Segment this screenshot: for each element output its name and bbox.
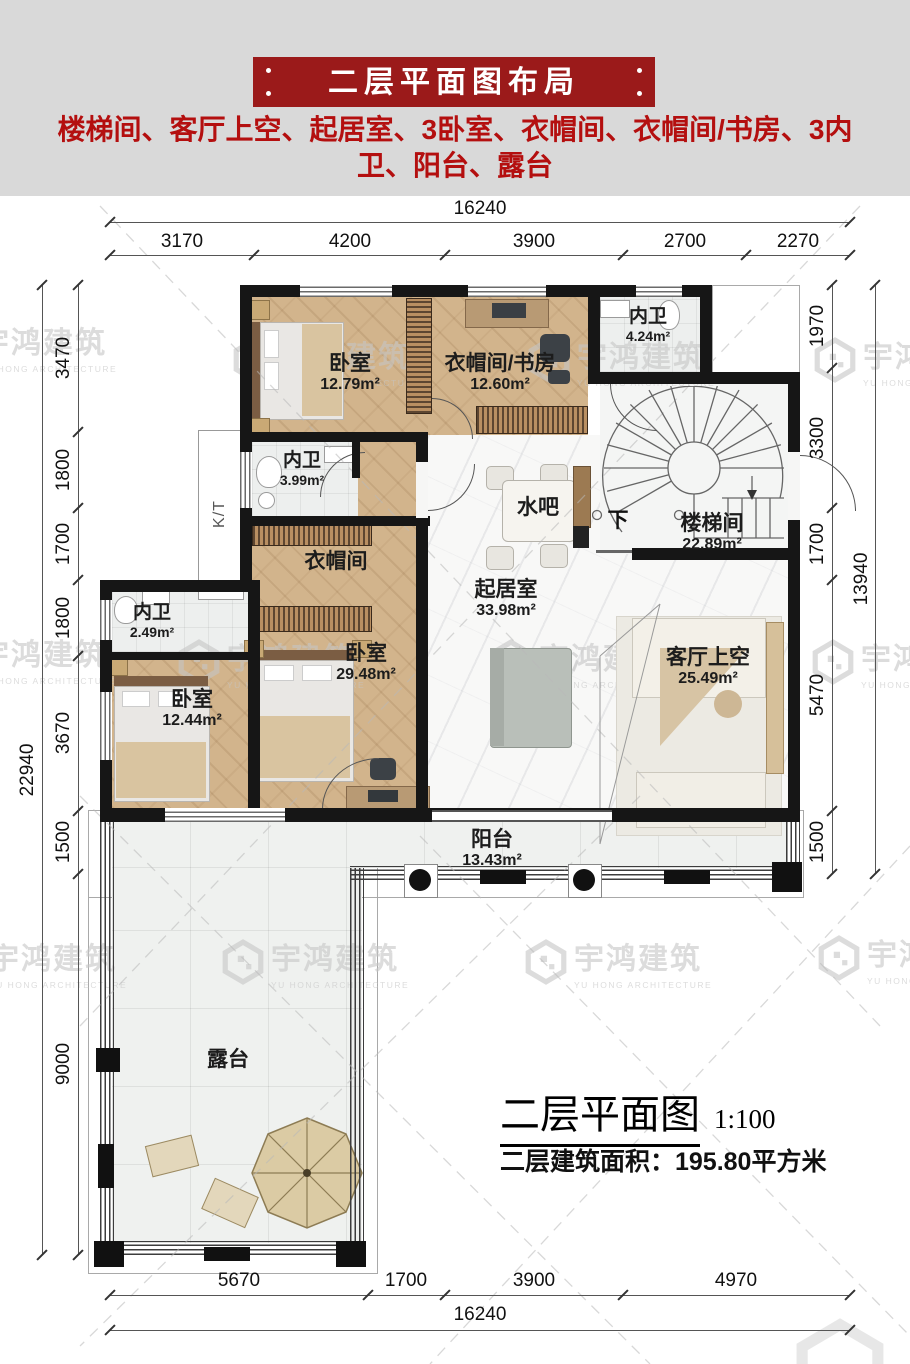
room-name: 内卫 (130, 602, 174, 624)
room-area: 33.98m² (475, 602, 538, 620)
corner-post (772, 862, 802, 892)
plan-caption: 二层平面图 1:100 (500, 1082, 776, 1147)
window (165, 808, 285, 822)
dim-label: 4970 (715, 1270, 757, 1292)
door-opening (788, 452, 800, 520)
room-label-bedroom3: 卧室29.48m² (336, 642, 396, 685)
dim-label: 4200 (329, 231, 371, 253)
dim-label: 1800 (53, 597, 75, 639)
room-area: 4.24m² (626, 328, 670, 344)
wall-segment (700, 285, 712, 384)
room-area: 12.44m² (162, 712, 222, 730)
room-label-living-void: 客厅上空25.49m² (666, 646, 750, 689)
dimension-line (42, 285, 43, 1255)
room-name: 客厅上空 (666, 646, 750, 670)
room-label-living: 起居室33.98m² (475, 578, 538, 621)
room-name: 内卫 (280, 450, 324, 472)
room-label-bath3: 内卫2.49m² (130, 602, 174, 640)
room-area: 3.99m² (280, 472, 324, 488)
wall-segment (240, 516, 430, 526)
dim-label: 3470 (53, 337, 75, 379)
room-name: 卧室 (336, 642, 396, 666)
round-column (568, 864, 602, 898)
corner-post (336, 1241, 366, 1267)
dimension-line (110, 1330, 850, 1331)
room-label-water-bar: 水吧 (517, 496, 559, 520)
wall-segment (588, 372, 800, 384)
banner-dot (637, 68, 642, 73)
page-title-banner: 二层平面图布局 (253, 57, 655, 107)
banner-dot (637, 91, 642, 96)
room-name: 衣帽间/书房 (445, 352, 556, 376)
dim-label: 16240 (454, 1304, 507, 1326)
dim-label: 3900 (513, 1270, 555, 1292)
dim-label: 1500 (807, 821, 829, 863)
railing-post (204, 1247, 250, 1261)
room-name: 卧室 (320, 352, 380, 376)
railing-post (664, 870, 710, 884)
room-label-stairwell: 楼梯间22.89m² (681, 512, 744, 555)
room-name: 露台 (207, 1048, 249, 1072)
dimension-line (875, 285, 876, 874)
wall-segment (588, 285, 600, 384)
dim-label: 9000 (53, 1043, 75, 1085)
room-label-bath1: 内卫4.24m² (626, 306, 670, 344)
wardrobe (406, 298, 432, 414)
room-area: 12.79m² (320, 376, 380, 394)
room-label-bedroom1: 卧室12.79m² (320, 352, 380, 395)
room-label-terrace: 露台 (207, 1048, 249, 1072)
plan-area-note: 二层建筑面积：195.80平方米 (500, 1142, 826, 1178)
room-name: 阳台 (462, 828, 522, 852)
room-name: 卧室 (162, 688, 222, 712)
dim-label: 16240 (454, 198, 507, 220)
dimension-line (110, 222, 850, 223)
window (100, 692, 112, 760)
window (300, 285, 392, 297)
wall-segment (248, 660, 260, 812)
dim-label: 3300 (807, 417, 829, 459)
window (636, 285, 682, 297)
room-area: 25.49m² (666, 670, 750, 688)
window (240, 452, 252, 508)
corner-post (94, 1241, 124, 1267)
dimension-line (110, 255, 850, 256)
wall-segment (788, 372, 800, 822)
dim-label: 1970 (807, 305, 829, 347)
window (100, 600, 112, 640)
window (468, 285, 546, 297)
dim-label: 1700 (385, 1270, 427, 1292)
dim-label: 2270 (777, 231, 819, 253)
floor-plan-page: 二层平面图布局 楼梯间、客厅上空、起居室、3卧室、衣帽间、衣帽间/书房、3内卫、… (0, 0, 910, 1364)
wall-segment (100, 580, 260, 592)
stair-rail (596, 550, 636, 553)
dim-label: 1800 (53, 449, 75, 491)
sliding-door (432, 810, 612, 822)
door-opening (416, 462, 428, 518)
wardrobe (252, 606, 372, 632)
room-label-cloak-study: 衣帽间/书房12.60m² (445, 352, 556, 395)
room-label-bedroom2: 卧室12.44m² (162, 688, 222, 731)
room-area: 12.60m² (445, 376, 556, 394)
wall-segment (112, 652, 250, 660)
dim-label: 3900 (513, 231, 555, 253)
room-label-balcony: 阳台13.43m² (462, 828, 522, 871)
dim-label: 1700 (807, 523, 829, 565)
dim-label: 5470 (807, 674, 829, 716)
railing-post (98, 1144, 114, 1188)
dimension-line (110, 1295, 850, 1296)
room-label-bath2: 内卫3.99m² (280, 450, 324, 488)
wardrobe (476, 406, 588, 434)
railing-post (480, 870, 526, 884)
room-area: 29.48m² (336, 666, 396, 684)
dim-label: 3670 (53, 712, 75, 754)
round-column (404, 864, 438, 898)
wall-segment (352, 442, 360, 478)
wall-segment (248, 584, 260, 660)
dim-label: 1700 (53, 523, 75, 565)
dim-label: 2700 (664, 231, 706, 253)
banner-dot (266, 91, 271, 96)
dim-label: 3170 (161, 231, 203, 253)
room-name: 起居室 (475, 578, 538, 602)
room-area: 13.43m² (462, 852, 522, 870)
wall-segment (240, 432, 428, 442)
railing-post (96, 1048, 120, 1072)
room-area: 2.49m² (130, 624, 174, 640)
stair-down-label: 下 (608, 504, 629, 534)
room-name: 内卫 (626, 306, 670, 328)
plan-caption-scale: 1:100 (714, 1104, 776, 1135)
page-title: 二层平面图布局 (328, 66, 580, 99)
dim-label: 13940 (851, 553, 873, 606)
dim-label: 1500 (53, 821, 75, 863)
room-label-cloakroom: 衣帽间 (305, 550, 368, 574)
room-name: 衣帽间 (305, 550, 368, 574)
plan-caption-title: 二层平面图 (500, 1082, 700, 1147)
banner-dot (266, 68, 271, 73)
room-area: 22.89m² (681, 536, 744, 554)
room-name: 水吧 (517, 496, 559, 520)
page-subtitle: 楼梯间、客厅上空、起居室、3卧室、衣帽间、衣帽间/书房、3内卫、阳台、露台 (50, 112, 860, 185)
dim-label: 22940 (17, 744, 39, 797)
room-name: 楼梯间 (681, 512, 744, 536)
dim-label: 5670 (218, 1270, 260, 1292)
